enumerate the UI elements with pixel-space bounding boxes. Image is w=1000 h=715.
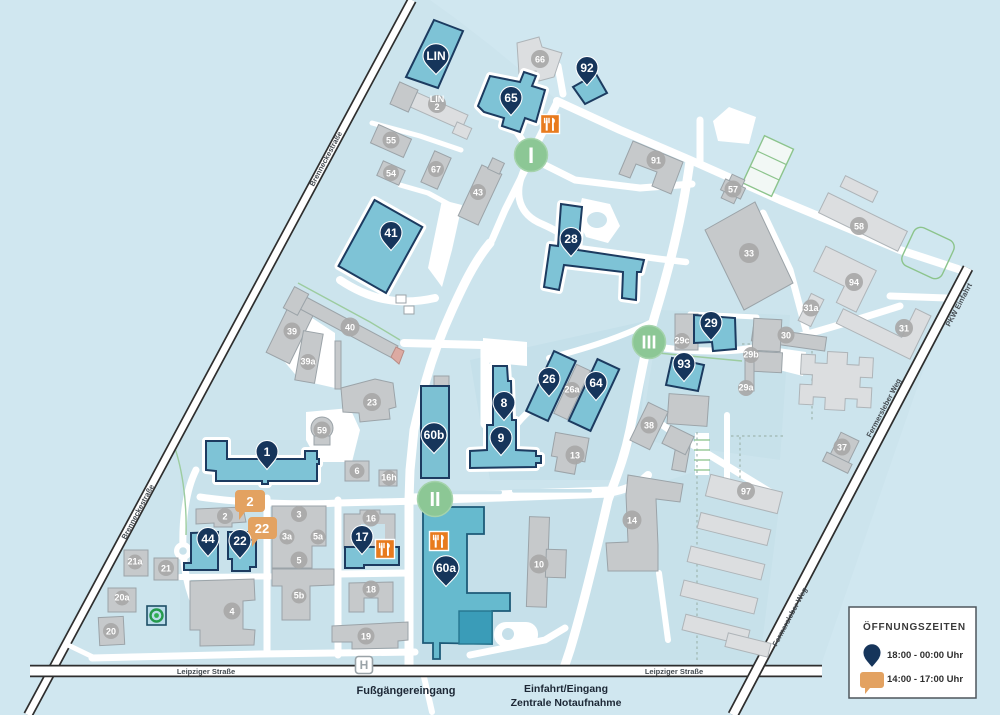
svg-text:22: 22 [255,521,269,536]
svg-text:66: 66 [535,55,545,65]
svg-text:39: 39 [287,327,297,337]
svg-text:26a: 26a [564,385,580,395]
svg-text:91: 91 [651,156,661,166]
svg-text:21a: 21a [127,557,143,567]
svg-text:67: 67 [431,165,441,175]
svg-text:54: 54 [386,169,396,179]
svg-text:28: 28 [564,232,578,246]
svg-text:I: I [528,143,534,168]
svg-text:97: 97 [741,487,751,497]
svg-text:3: 3 [296,510,301,520]
svg-text:13: 13 [570,451,580,461]
svg-text:58: 58 [854,222,864,232]
svg-text:LIN: LIN [426,49,445,63]
svg-text:40: 40 [345,323,355,333]
svg-text:18:00 - 00:00 Uhr: 18:00 - 00:00 Uhr [887,650,963,661]
svg-text:9: 9 [498,431,505,445]
svg-text:20: 20 [106,627,116,637]
svg-text:23: 23 [367,398,377,408]
svg-text:92: 92 [580,61,594,75]
svg-text:31: 31 [899,324,909,334]
svg-text:39a: 39a [300,357,316,367]
svg-text:Zentrale Notaufnahme: Zentrale Notaufnahme [511,697,622,709]
svg-text:2: 2 [434,102,439,112]
svg-text:64: 64 [589,376,603,390]
svg-text:30: 30 [781,331,791,341]
svg-text:4: 4 [229,607,234,617]
svg-text:60a: 60a [436,561,456,575]
svg-text:94: 94 [849,278,859,288]
svg-text:H: H [360,658,369,672]
svg-text:2: 2 [222,512,227,522]
svg-text:19: 19 [361,632,371,642]
svg-text:38: 38 [644,421,654,431]
svg-text:37: 37 [837,443,847,453]
svg-text:Fußgängereingang: Fußgängereingang [357,685,456,697]
svg-text:6: 6 [354,466,359,476]
svg-text:III: III [641,333,656,353]
svg-text:14:00 - 17:00 Uhr: 14:00 - 17:00 Uhr [887,674,963,685]
svg-text:29a: 29a [738,383,754,393]
svg-text:16h: 16h [381,473,397,483]
svg-text:5: 5 [296,556,301,566]
svg-text:14: 14 [627,516,637,526]
svg-text:59: 59 [317,426,327,436]
svg-text:Leipziger Straße: Leipziger Straße [645,667,703,676]
svg-text:ÖFFNUNGSZEITEN: ÖFFNUNGSZEITEN [863,620,966,633]
svg-text:29b: 29b [743,350,759,360]
svg-text:Einfahrt/Eingang: Einfahrt/Eingang [524,683,608,695]
svg-text:17: 17 [355,530,369,544]
svg-text:5b: 5b [294,591,305,601]
svg-text:1: 1 [264,445,271,459]
svg-text:33: 33 [744,249,754,259]
svg-text:26: 26 [542,372,556,386]
svg-text:II: II [429,489,440,511]
svg-text:8: 8 [501,396,508,410]
svg-text:3a: 3a [282,532,293,542]
svg-text:20a: 20a [114,593,130,603]
svg-text:29: 29 [704,316,718,330]
svg-text:93: 93 [677,357,691,371]
svg-text:41: 41 [384,226,398,240]
svg-text:22: 22 [233,534,247,548]
svg-text:18: 18 [366,585,376,595]
svg-text:55: 55 [386,136,396,146]
svg-text:10: 10 [534,560,544,570]
svg-text:5a: 5a [313,532,324,542]
svg-text:2: 2 [246,494,253,509]
svg-text:60b: 60b [424,428,445,442]
svg-text:57: 57 [728,185,738,195]
svg-text:65: 65 [504,91,518,105]
svg-text:43: 43 [473,188,483,198]
svg-text:31a: 31a [803,303,819,313]
svg-text:21: 21 [161,564,171,574]
svg-text:16: 16 [366,514,376,524]
svg-text:44: 44 [201,532,215,546]
svg-text:29c: 29c [674,336,689,346]
svg-text:Leipziger Straße: Leipziger Straße [177,667,235,676]
